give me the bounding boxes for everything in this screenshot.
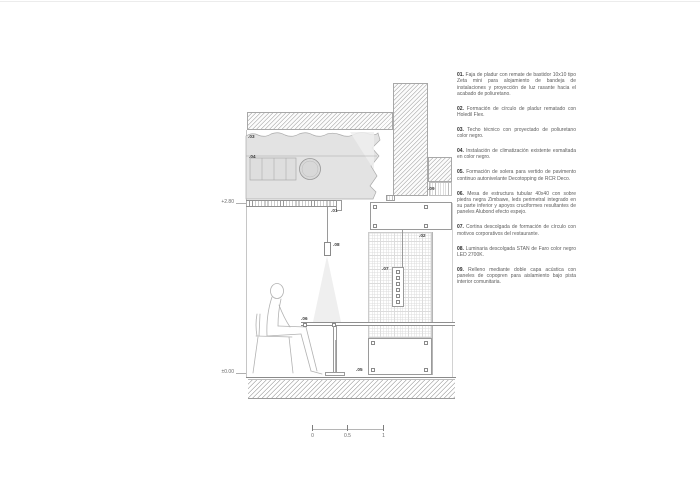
top-hairline	[0, 1, 700, 2]
scale-tick	[312, 425, 313, 431]
note-06: 06. Mesa de estructura tubular 40x40 con…	[457, 191, 576, 216]
note-number: 08.	[457, 246, 464, 252]
pladur-circle-box	[370, 202, 452, 230]
note-text: Techo técnico con proyectado de poliuret…	[457, 127, 576, 139]
chain-link	[396, 294, 400, 298]
scale-bar-line	[312, 429, 384, 430]
scale-tick	[383, 425, 384, 431]
chain-link	[396, 276, 400, 280]
grid-right-edge-line	[432, 232, 433, 375]
curtain-weight-chain	[392, 267, 404, 307]
fixing-square	[371, 368, 375, 372]
note-text: Formación de solera para vertido de pavi…	[457, 169, 576, 181]
floor-slab-hatch	[248, 379, 455, 399]
fixing-square	[424, 368, 428, 372]
callout-09: .09	[428, 186, 435, 191]
callout-07: .07	[382, 266, 389, 271]
note-number: 07.	[457, 224, 464, 230]
chain-link	[396, 270, 400, 274]
chain-link	[396, 282, 400, 286]
note-text: Mesa de estructura tubular 40x40 con sob…	[457, 191, 576, 216]
section-drawing-sheet: +2.80 ±0.00 .01 .02 .03 .04 .05 .06 .07 …	[0, 0, 700, 495]
note-number: 05.	[457, 169, 464, 175]
level-floor: ±0.00	[212, 369, 234, 375]
lamp-wire	[327, 207, 328, 242]
table-base-plate	[325, 372, 345, 376]
scale-label-half: 0.5	[339, 433, 356, 439]
note-03: 03. Techo técnico con proyectado de poli…	[457, 127, 576, 140]
seated-person-figure	[245, 278, 330, 378]
callout-05: .05	[356, 367, 363, 372]
fixing-square	[424, 205, 428, 209]
note-text: Instalación de climatización existente e…	[457, 148, 576, 160]
note-number: 02.	[457, 106, 464, 112]
note-text: Formación de círculo de pladur rematado …	[457, 106, 576, 118]
pladur-fascia-band	[246, 200, 341, 207]
scale-tick	[347, 425, 348, 431]
duct-circle	[300, 159, 321, 180]
scale-bar: 0 0.5 1	[308, 424, 390, 444]
table-pedestal-core	[335, 340, 336, 372]
note-number: 09.	[457, 267, 464, 273]
note-02: 02. Formación de círculo de pladur remat…	[457, 106, 576, 119]
note-text: Faja de pladur con remate de bastidor 10…	[457, 72, 576, 97]
curtain-drop-wire	[402, 230, 403, 267]
fixing-square	[373, 205, 377, 209]
callout-04: .04	[249, 154, 256, 159]
scale-label-one: 1	[379, 433, 388, 439]
note-09: 09. Relleno mediante doble capa acústica…	[457, 267, 576, 286]
chain-link	[396, 288, 400, 292]
note-text: Relleno mediante doble capa acústica con…	[457, 267, 576, 286]
fixing-square	[373, 224, 377, 228]
annotation-column: 01. Faja de pladur con remate de bastido…	[457, 72, 576, 294]
note-text: Cortina descolgada de formación de círcu…	[457, 224, 576, 236]
note-08: 08. Luminaria descolgada STAN de Faro co…	[457, 246, 576, 259]
note-01: 01. Faja de pladur con remate de bastido…	[457, 72, 576, 97]
level-ceiling-leader	[236, 203, 246, 204]
callout-02: .02	[419, 233, 426, 238]
note-number: 04.	[457, 148, 464, 154]
note-text: Luminaria descolgada STAN de Faro color …	[457, 246, 576, 258]
callout-08: .08	[333, 242, 340, 247]
table-top	[301, 322, 455, 326]
table-fixing-square	[303, 323, 307, 327]
note-04: 04. Instalación de climatización existen…	[457, 148, 576, 161]
callout-03: .03	[248, 134, 255, 139]
lamp-body	[324, 242, 331, 256]
note-number: 01.	[457, 72, 464, 78]
scale-label-zero: 0	[308, 433, 317, 439]
right-cut-line	[452, 203, 453, 377]
note-number: 03.	[457, 127, 464, 133]
level-floor-leader	[236, 373, 246, 374]
fixing-square	[424, 224, 428, 228]
fixing-square	[371, 341, 375, 345]
note-05: 05. Formación de solera para vertido de …	[457, 169, 576, 182]
callout-01: .01	[331, 208, 338, 213]
note-number: 06.	[457, 191, 464, 197]
bench-box	[368, 338, 432, 375]
chain-link	[396, 300, 400, 304]
cove-light-tray	[386, 195, 395, 201]
floor-finish-line	[246, 377, 456, 378]
wall-hatch-step	[428, 157, 452, 182]
fixing-square	[424, 341, 428, 345]
note-07: 07. Cortina descolgada de formación de c…	[457, 224, 576, 237]
callout-06: .06	[301, 316, 308, 321]
level-ceiling: +2.80	[212, 199, 234, 205]
